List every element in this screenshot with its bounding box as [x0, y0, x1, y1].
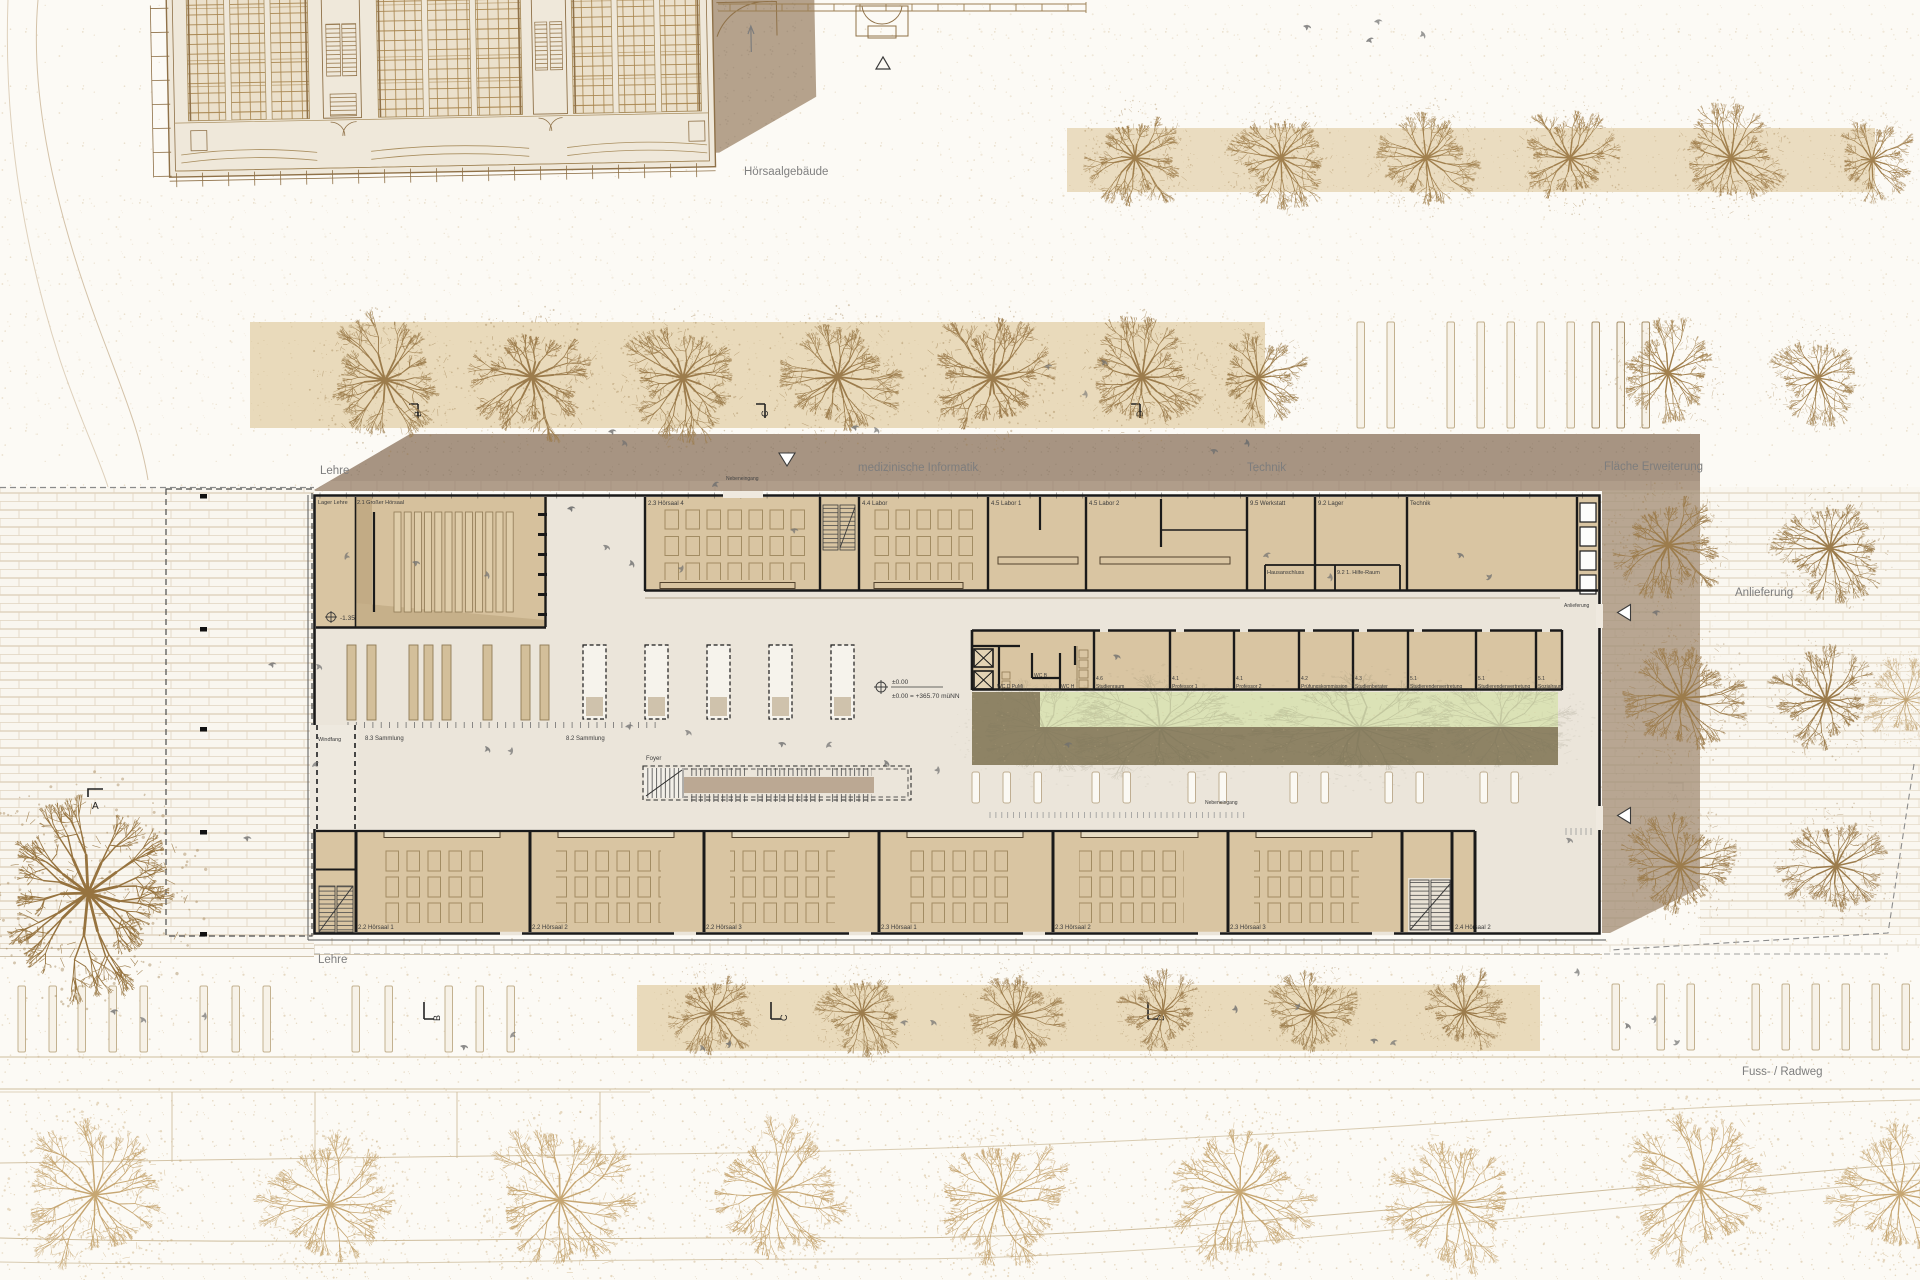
svg-text:Prüfungskommission: Prüfungskommission [1301, 684, 1348, 690]
svg-text:2.4 Hörsaal 2: 2.4 Hörsaal 2 [1455, 925, 1491, 931]
svg-text:±0.00: ±0.00 [892, 679, 909, 686]
svg-text:4.6: 4.6 [1096, 676, 1103, 682]
svg-text:Hausanschluss: Hausanschluss [1267, 570, 1305, 576]
svg-text:B: B [432, 1015, 442, 1021]
svg-text:9.2 Lager: 9.2 Lager [1318, 501, 1343, 507]
svg-text:Lager Lehre: Lager Lehre [318, 500, 348, 506]
svg-text:Windfang: Windfang [318, 737, 341, 743]
svg-text:Technik: Technik [1410, 501, 1431, 507]
svg-text:±0.00 = +365.70 müNN: ±0.00 = +365.70 müNN [892, 693, 960, 700]
svg-text:4.1: 4.1 [1172, 676, 1179, 682]
svg-text:2.1 Großer Hörsaal: 2.1 Großer Hörsaal [357, 500, 404, 506]
svg-text:8.3 Sammlung: 8.3 Sammlung [365, 736, 404, 742]
svg-text:2.2 Hörsaal 3: 2.2 Hörsaal 3 [706, 925, 742, 931]
svg-text:Nebeneingang: Nebeneingang [1205, 800, 1238, 806]
svg-text:Anlieferung: Anlieferung [1564, 603, 1590, 609]
svg-text:5.1: 5.1 [1538, 676, 1545, 682]
svg-text:9.5 Werkstatt: 9.5 Werkstatt [1250, 501, 1286, 507]
svg-text:4.1: 4.1 [1236, 676, 1243, 682]
svg-text:4.2: 4.2 [1301, 676, 1308, 682]
svg-text:9.2 1. Hilfe-Raum: 9.2 1. Hilfe-Raum [1337, 570, 1380, 576]
svg-text:Lehre: Lehre [318, 954, 347, 966]
svg-text:Fläche Erweiterung: Fläche Erweiterung [1604, 461, 1703, 473]
svg-text:medizinische Informatik: medizinische Informatik [858, 462, 978, 474]
svg-text:2.3 Hörsaal 3: 2.3 Hörsaal 3 [1230, 925, 1266, 931]
svg-text:C: C [760, 410, 770, 417]
svg-text:WC B: WC B [1034, 673, 1048, 679]
svg-text:2.3 Hörsaal 1: 2.3 Hörsaal 1 [881, 925, 917, 931]
svg-text:D: D [1135, 410, 1145, 417]
svg-text:C: C [779, 1014, 789, 1021]
svg-text:Hörsaalgebäude: Hörsaalgebäude [744, 166, 828, 178]
svg-text:Technik: Technik [1247, 462, 1286, 474]
svg-text:4.5 Labor 1: 4.5 Labor 1 [991, 501, 1022, 507]
svg-text:2.3 Hörsaal 2: 2.3 Hörsaal 2 [1055, 925, 1091, 931]
svg-text:8.2 Sammlung: 8.2 Sammlung [566, 736, 605, 742]
svg-text:5.1: 5.1 [1410, 676, 1417, 682]
svg-text:5.1: 5.1 [1478, 676, 1485, 682]
svg-text:Nebeneingang: Nebeneingang [726, 476, 759, 482]
svg-text:Fuss- / Radweg: Fuss- / Radweg [1742, 1066, 1823, 1078]
svg-text:Lehre: Lehre [320, 465, 349, 477]
svg-text:Professor 1: Professor 1 [1172, 684, 1198, 690]
svg-text:2.3 Hörsaal 4: 2.3 Hörsaal 4 [648, 501, 684, 507]
svg-text:A: A [92, 801, 99, 812]
svg-text:2.2 Hörsaal 2: 2.2 Hörsaal 2 [532, 925, 568, 931]
svg-text:4.5 Labor 2: 4.5 Labor 2 [1089, 501, 1120, 507]
svg-text:Professor 2: Professor 2 [1236, 684, 1262, 690]
svg-text:Foyer: Foyer [646, 756, 661, 762]
svg-text:-1.35: -1.35 [340, 615, 355, 622]
svg-text:4.4 Labor: 4.4 Labor [862, 501, 887, 507]
svg-text:2.2 Hörsaal 1: 2.2 Hörsaal 1 [358, 925, 394, 931]
